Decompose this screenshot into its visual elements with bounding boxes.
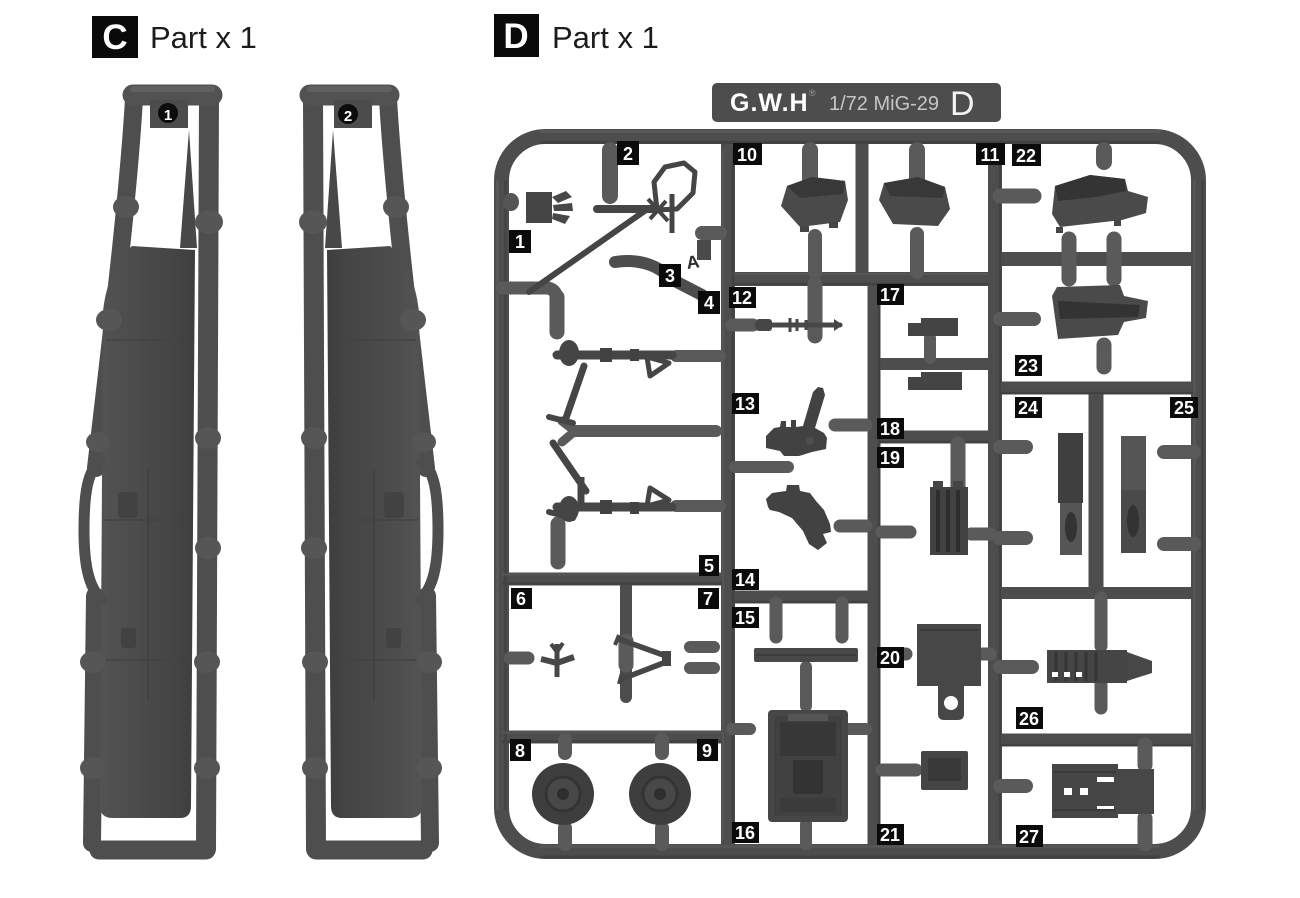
svg-text:21: 21 — [880, 825, 900, 845]
svg-text:22: 22 — [1016, 146, 1036, 166]
svg-text:5: 5 — [704, 556, 714, 576]
svg-text:8: 8 — [515, 741, 525, 761]
svg-text:19: 19 — [880, 448, 900, 468]
svg-text:Part x 1: Part x 1 — [150, 20, 257, 55]
svg-text:2: 2 — [344, 108, 352, 125]
svg-text:9: 9 — [702, 741, 712, 761]
svg-text:7: 7 — [703, 589, 713, 609]
svg-text:14: 14 — [735, 570, 755, 590]
svg-text:Part x 1: Part x 1 — [552, 20, 659, 55]
svg-text:1: 1 — [164, 107, 172, 124]
svg-text:4: 4 — [704, 293, 714, 313]
svg-text:D: D — [950, 85, 975, 123]
svg-text:17: 17 — [880, 285, 900, 305]
svg-text:D: D — [503, 17, 528, 56]
svg-text:20: 20 — [880, 648, 900, 668]
svg-text:23: 23 — [1018, 356, 1038, 376]
svg-text:13: 13 — [735, 394, 755, 414]
svg-text:25: 25 — [1174, 398, 1194, 418]
svg-text:15: 15 — [735, 608, 755, 628]
svg-text:10: 10 — [737, 145, 757, 165]
svg-text:12: 12 — [732, 288, 752, 308]
svg-text:®: ® — [809, 88, 816, 98]
svg-text:16: 16 — [735, 823, 755, 843]
svg-text:6: 6 — [516, 589, 526, 609]
svg-text:2: 2 — [623, 144, 633, 164]
svg-text:24: 24 — [1018, 398, 1038, 418]
svg-text:18: 18 — [880, 419, 900, 439]
svg-text:G.W.H: G.W.H — [730, 89, 809, 117]
svg-text:27: 27 — [1019, 827, 1039, 847]
svg-text:1: 1 — [515, 232, 525, 252]
svg-text:C: C — [102, 18, 127, 57]
svg-text:1/72 MiG-29: 1/72 MiG-29 — [829, 93, 939, 115]
svg-text:11: 11 — [980, 145, 999, 165]
svg-text:3: 3 — [665, 266, 675, 286]
svg-text:26: 26 — [1019, 709, 1039, 729]
svg-text:A: A — [685, 251, 701, 273]
